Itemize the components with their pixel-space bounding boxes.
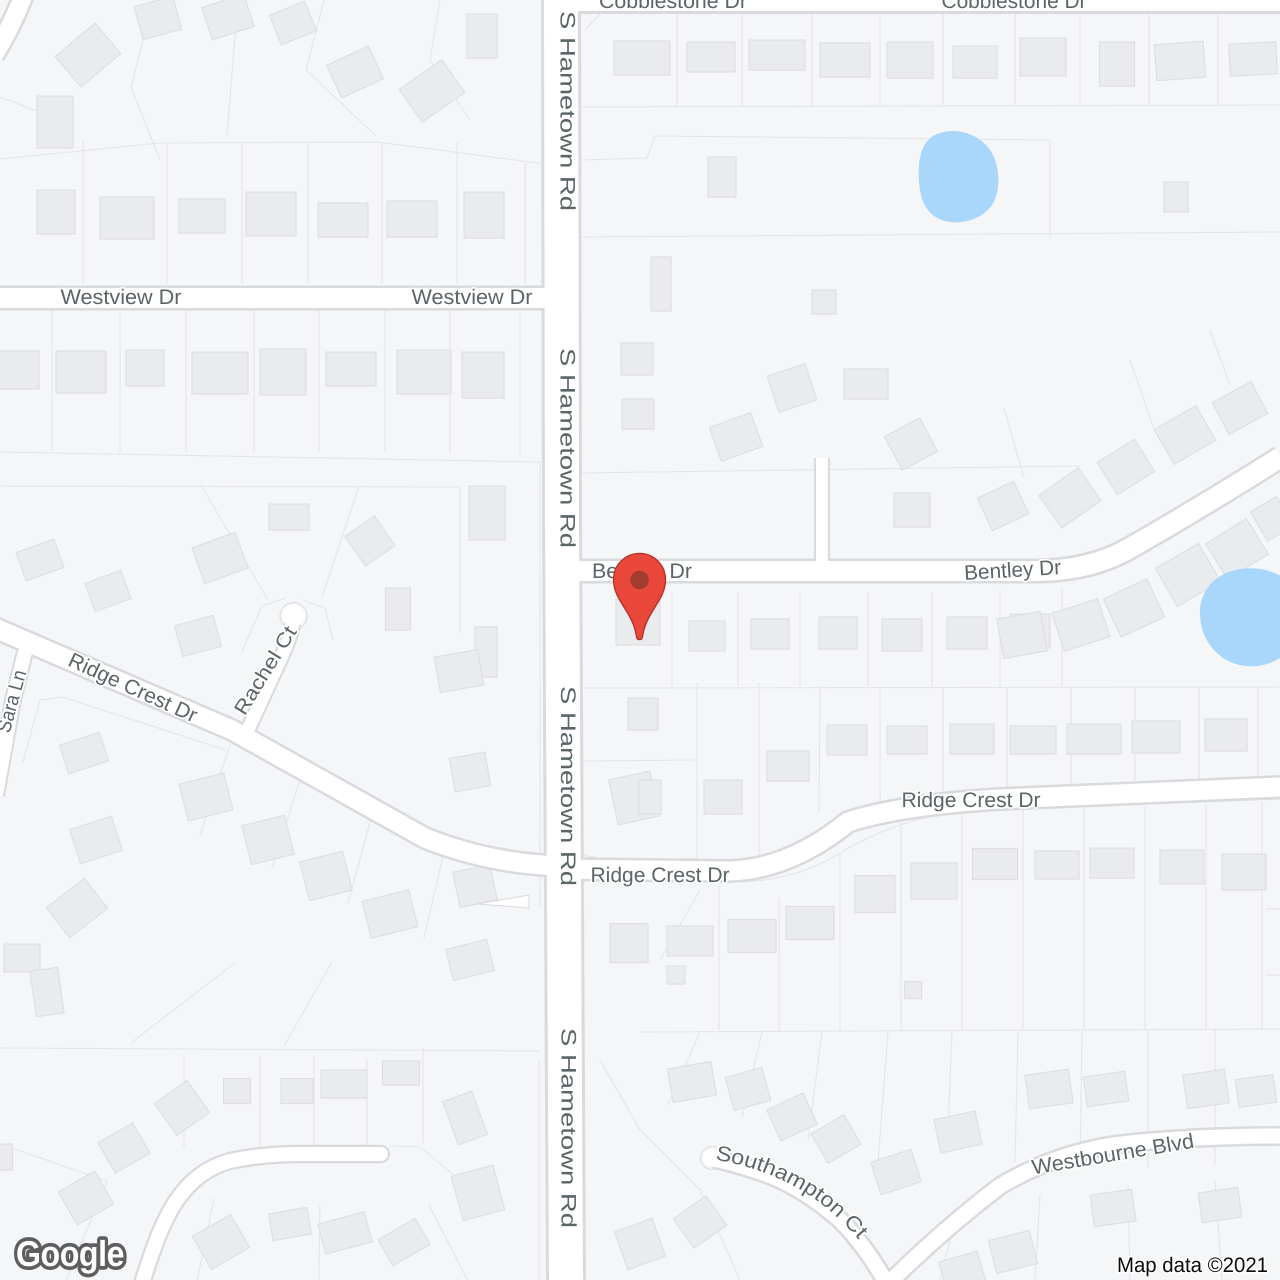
svg-text:Westview Dr: Westview Dr bbox=[61, 286, 182, 309]
svg-text:Ridge Crest Dr: Ridge Crest Dr bbox=[591, 864, 730, 887]
svg-text:S Hametown Rd: S Hametown Rd bbox=[556, 348, 579, 548]
svg-text:S Hametown Rd: S Hametown Rd bbox=[557, 1028, 580, 1228]
svg-text:Map data ©2021: Map data ©2021 bbox=[1117, 1254, 1268, 1277]
svg-text:Ridge Crest Dr: Ridge Crest Dr bbox=[902, 789, 1041, 812]
svg-text:S Hametown Rd: S Hametown Rd bbox=[556, 686, 579, 886]
svg-text:Cobblestone Dr: Cobblestone Dr bbox=[942, 0, 1087, 13]
svg-text:S Hametown Rd: S Hametown Rd bbox=[556, 11, 579, 211]
svg-text:Cobblestone Dr: Cobblestone Dr bbox=[599, 0, 747, 13]
svg-text:Westview Dr: Westview Dr bbox=[412, 286, 533, 309]
svg-text:Google: Google bbox=[16, 1233, 124, 1274]
